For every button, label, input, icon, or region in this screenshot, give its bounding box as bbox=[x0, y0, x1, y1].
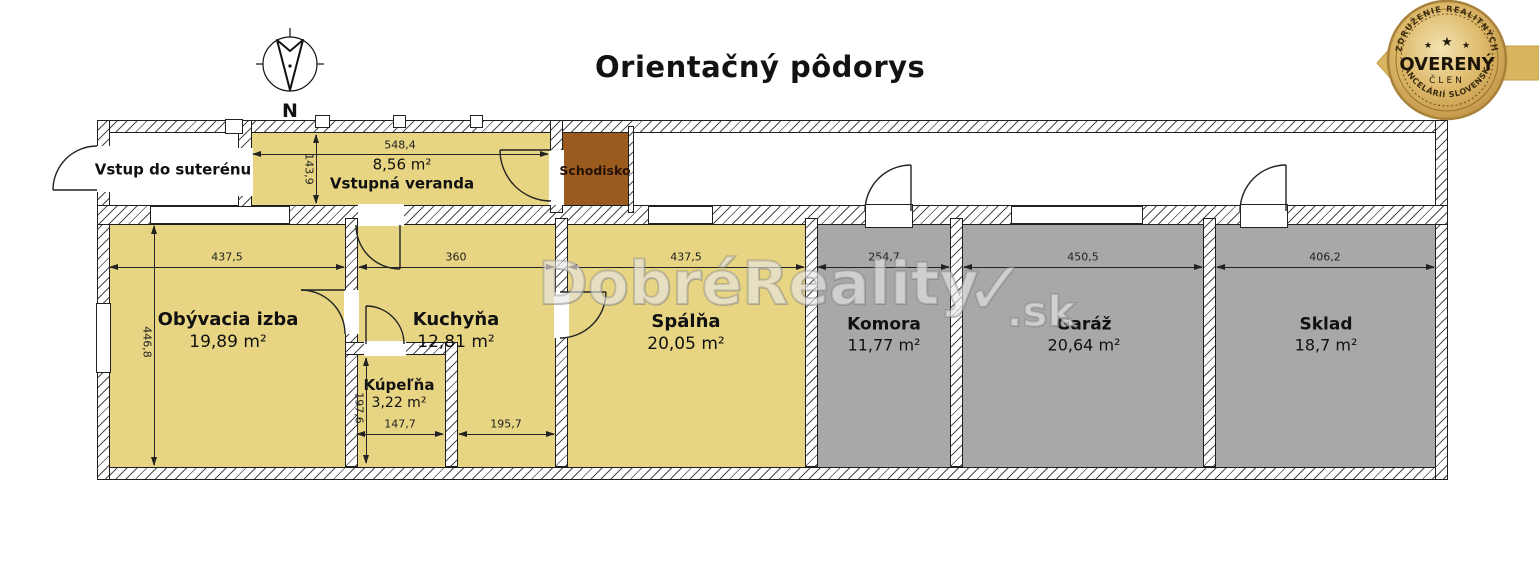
wall-outer-right bbox=[1435, 120, 1448, 480]
room-name: Komora bbox=[847, 314, 921, 335]
dim-line-komora-width bbox=[818, 267, 949, 268]
badge-subtitle: ČLEN bbox=[1429, 74, 1465, 86]
door-opening bbox=[344, 290, 359, 334]
dim-line-obyvacia-width bbox=[110, 267, 344, 268]
room-name: Vstupná veranda bbox=[330, 174, 474, 193]
wall-komora-garaz bbox=[950, 218, 963, 467]
dim-line-obyvacia-height bbox=[154, 226, 155, 465]
verified-badge: ZDRUŽENIE REALITNÝCH KANCELÁRIÍ SLOVENSK… bbox=[1355, 0, 1539, 130]
wall-outer-bottom bbox=[97, 467, 1448, 480]
window bbox=[393, 115, 406, 128]
badge-star-icon: ★ bbox=[1462, 41, 1470, 51]
dim-label: 143,9 bbox=[303, 153, 316, 185]
window bbox=[1011, 206, 1143, 224]
badge-star-icon: ★ bbox=[1424, 41, 1432, 51]
dim-label: 197,6 bbox=[353, 392, 366, 424]
dim-label: 437,5 bbox=[211, 251, 243, 264]
room-name: Kúpeľňa bbox=[364, 376, 435, 395]
room-name: Sklad bbox=[1295, 314, 1358, 335]
dim-label: 446,8 bbox=[141, 326, 154, 358]
window bbox=[96, 303, 111, 373]
dim-line-sklad-width bbox=[1217, 267, 1434, 268]
window bbox=[315, 115, 330, 128]
wall-kuchyna-spalna bbox=[555, 218, 568, 467]
dim-label: 195,7 bbox=[490, 418, 522, 431]
dim-label: 450,5 bbox=[1067, 251, 1099, 264]
wall-outer-top bbox=[97, 120, 1448, 133]
compass-north-label: N bbox=[282, 100, 298, 122]
room-name: Garáž bbox=[1048, 314, 1121, 335]
dim-label: 437,5 bbox=[670, 251, 702, 264]
window bbox=[470, 115, 483, 128]
door-opening bbox=[554, 292, 569, 338]
door-opening bbox=[364, 341, 406, 356]
dim-line-spalna-width bbox=[569, 267, 804, 268]
door-arc bbox=[53, 146, 97, 190]
room-label-vstup: Vstup do suterénu bbox=[95, 161, 252, 180]
room-label-obyvacia: Obývacia izba 19,89 m² bbox=[158, 309, 299, 353]
dim-line-veranda-height bbox=[316, 135, 317, 203]
compass-icon: N bbox=[245, 15, 355, 130]
room-area: 20,05 m² bbox=[647, 334, 724, 355]
room-name: Vstup do suterénu bbox=[95, 161, 252, 180]
page-title: Orientačný pôdorys bbox=[595, 50, 925, 84]
wall-kupelna-right bbox=[445, 342, 458, 467]
room-name: Kuchyňa bbox=[413, 309, 500, 332]
dim-label: 254,7 bbox=[868, 251, 900, 264]
dim-label: 548,4 bbox=[384, 139, 416, 152]
room-label-schodisko: Schodisko bbox=[559, 163, 630, 179]
badge-star-icon: ★ bbox=[1441, 35, 1453, 50]
room-label-kupelna: Kúpeľňa 3,22 m² bbox=[364, 376, 435, 412]
wall-garaz-sklad bbox=[1203, 218, 1216, 467]
dim-line-veranda-width bbox=[253, 154, 548, 155]
dim-line-kuchyna-lower-width bbox=[459, 434, 554, 435]
room-label-kuchyna: Kuchyňa 12,81 m² bbox=[413, 309, 500, 353]
room-label-komora: Komora 11,77 m² bbox=[847, 314, 921, 355]
window bbox=[150, 206, 290, 224]
window bbox=[648, 206, 713, 224]
room-area: 20,64 m² bbox=[1048, 336, 1121, 356]
dim-label: 406,2 bbox=[1309, 251, 1341, 264]
door-opening bbox=[865, 204, 913, 228]
dim-label: 360 bbox=[446, 251, 467, 264]
room-area: 12,81 m² bbox=[413, 332, 500, 353]
room-label-garaz: Garáž 20,64 m² bbox=[1048, 314, 1121, 355]
door-opening bbox=[1240, 204, 1288, 228]
room-area: 19,89 m² bbox=[158, 332, 299, 353]
dim-line-garaz-width bbox=[964, 267, 1202, 268]
wall-spalna-komora bbox=[805, 218, 818, 467]
dim-line-kupelna-height bbox=[366, 358, 367, 463]
dim-label: 147,7 bbox=[384, 418, 416, 431]
dim-line-kuchyna-width bbox=[359, 267, 554, 268]
window bbox=[225, 119, 243, 134]
badge-title: OVERENÝ bbox=[1399, 53, 1495, 75]
room-label-sklad: Sklad 18,7 m² bbox=[1295, 314, 1358, 355]
dim-line-kupelna-width bbox=[357, 434, 443, 435]
room-area: 3,22 m² bbox=[364, 395, 435, 413]
door-opening bbox=[358, 204, 404, 226]
room-name: Obývacia izba bbox=[158, 309, 299, 332]
room-name: Schodisko bbox=[559, 163, 630, 179]
room-area: 18,7 m² bbox=[1295, 336, 1358, 356]
room-label-spalna: Spálňa 20,05 m² bbox=[647, 311, 724, 355]
room-area: 8,56 m² bbox=[330, 155, 474, 174]
room-corridor bbox=[634, 133, 1435, 207]
floor-plan-page: Orientačný pôdorys N ZDRUŽENIE REALITNÝC… bbox=[0, 0, 1539, 581]
room-name: Spálňa bbox=[647, 311, 724, 334]
room-area: 11,77 m² bbox=[847, 336, 921, 356]
room-label-veranda: 8,56 m² Vstupná veranda bbox=[330, 155, 474, 193]
